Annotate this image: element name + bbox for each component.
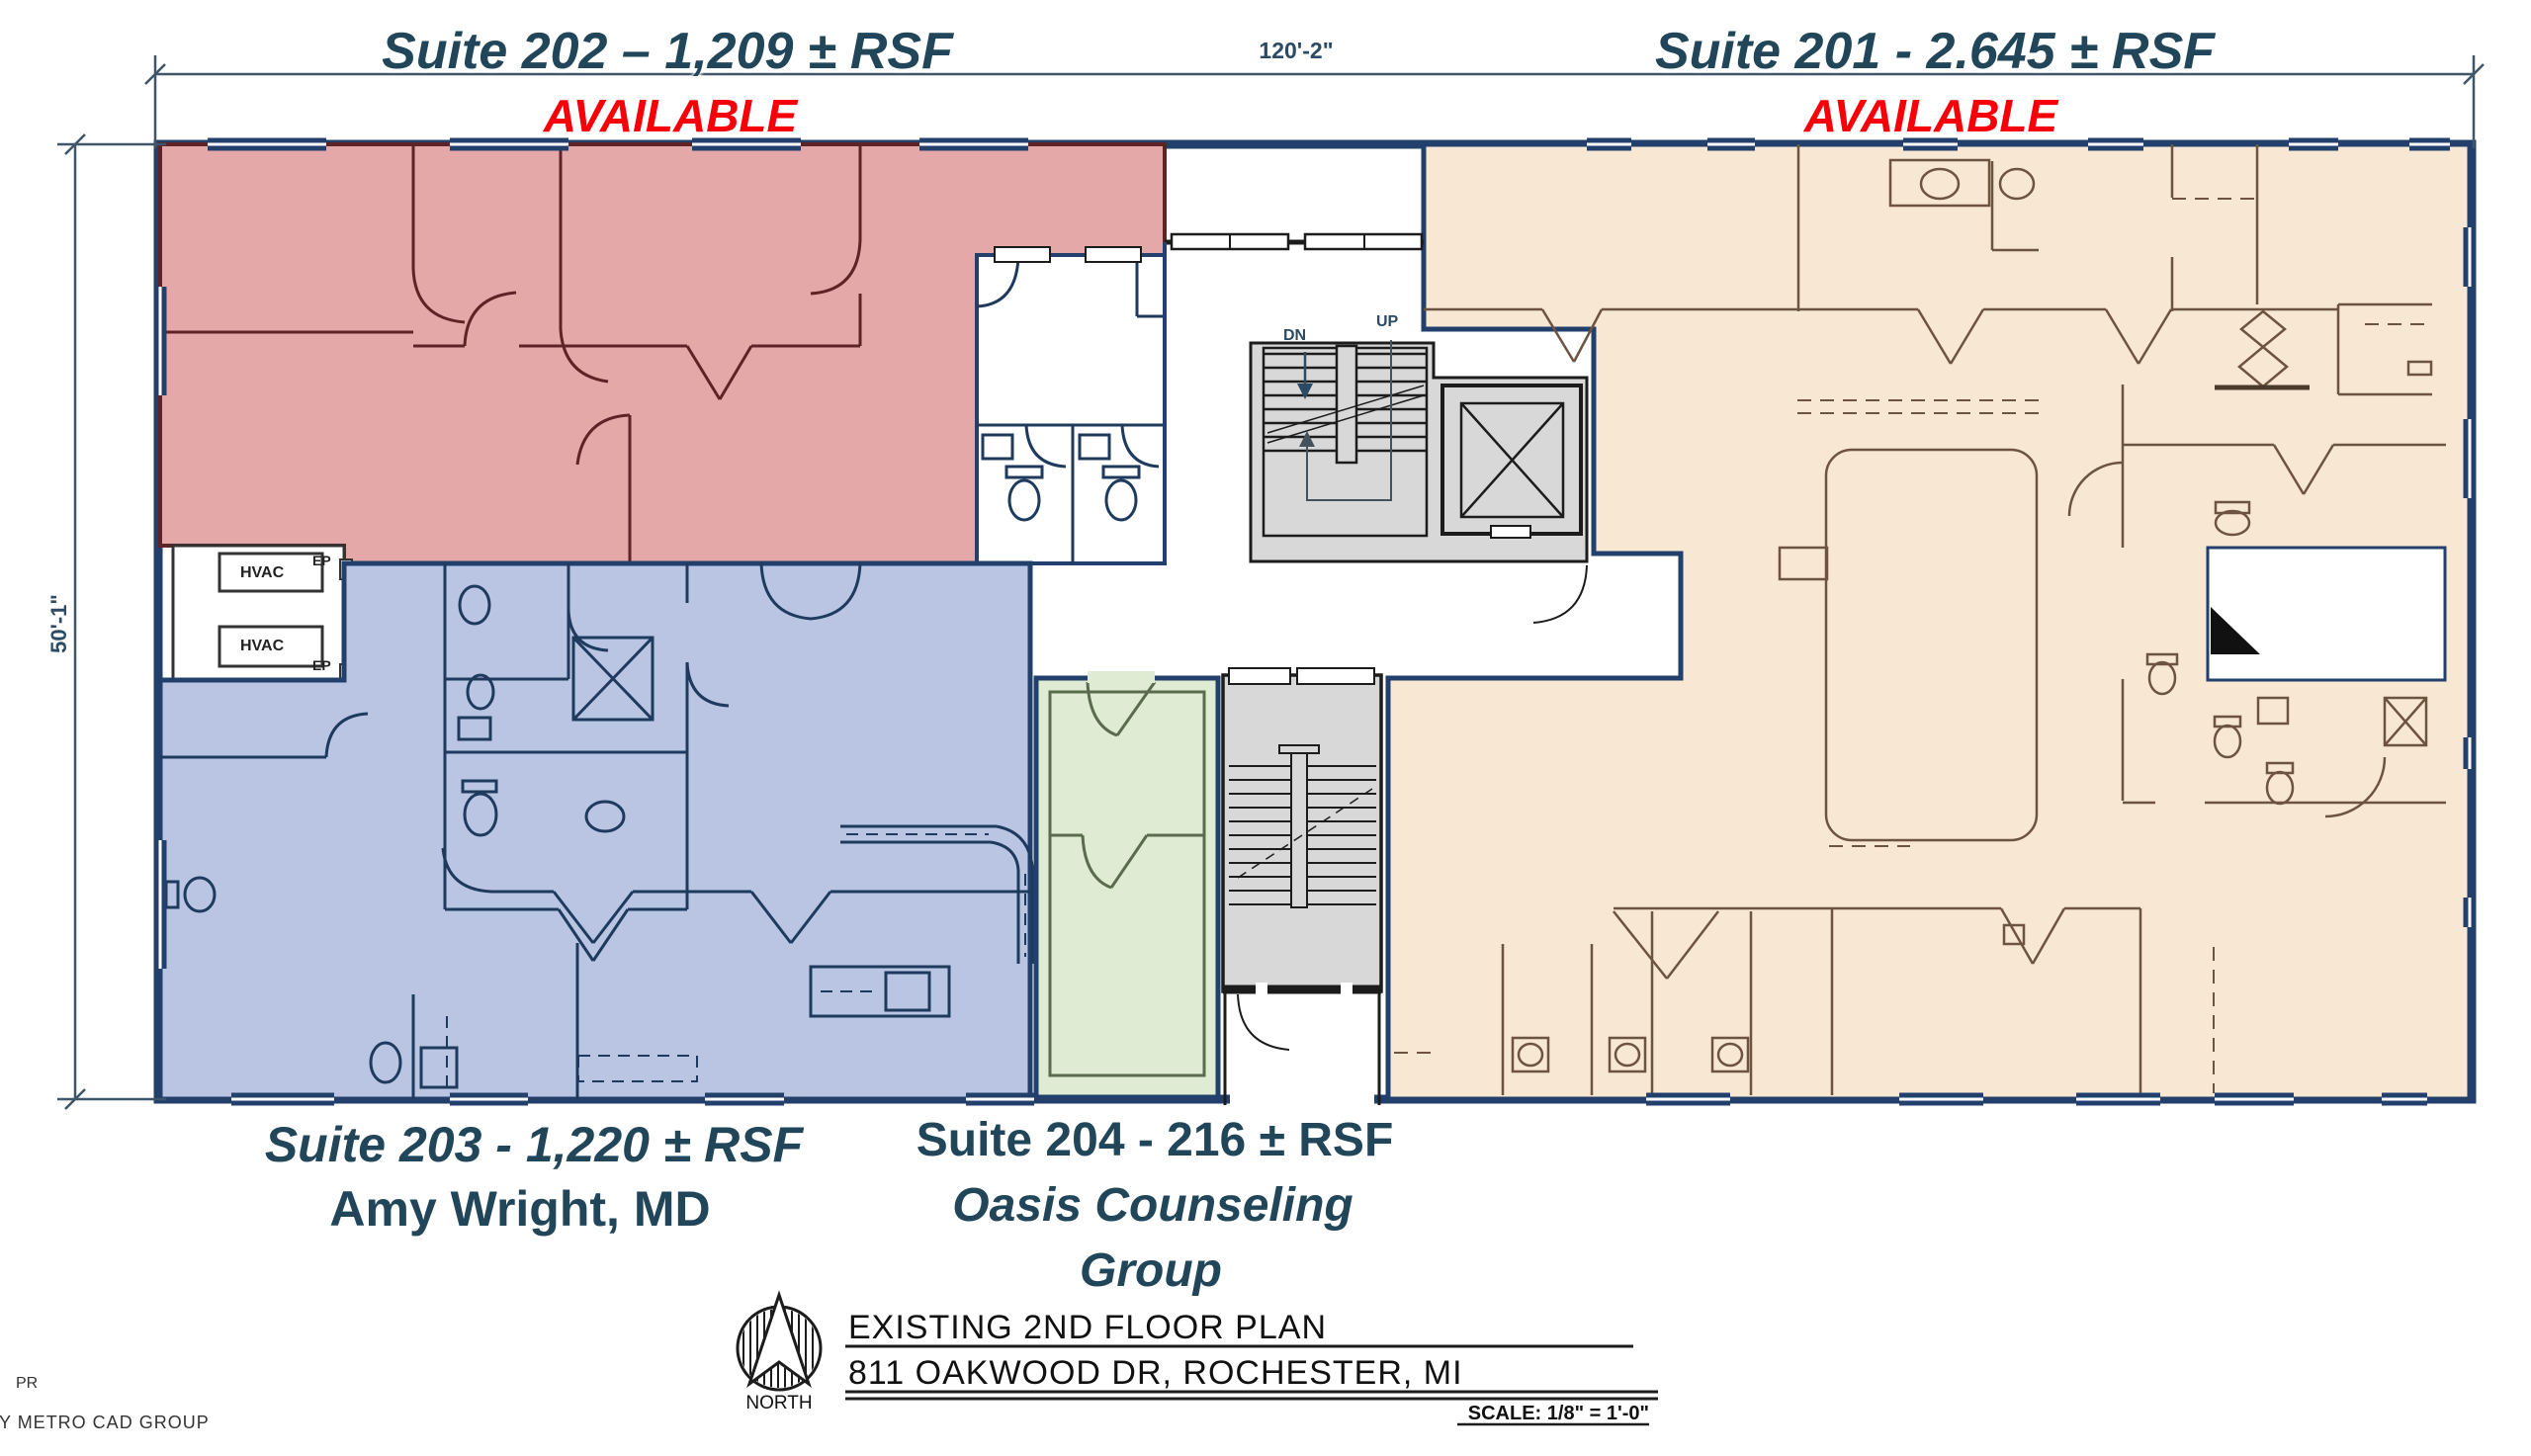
sheet-address: 811 OAKWOOD DR, ROCHESTER, MI (848, 1356, 1463, 1390)
ep-label-1: EP (312, 554, 331, 567)
corridor-notch (2208, 548, 2445, 680)
floor-plan-sheet: Suite 202 – 1,209 ± RSF AVAILABLE 120'-2… (0, 0, 2531, 1456)
restroom-block (977, 247, 1165, 563)
suite-204-tenant-line2: Group (1080, 1247, 1222, 1295)
ep-label-2: EP (312, 658, 331, 672)
floor-plan-drawing (0, 0, 2531, 1456)
sheet-scale: SCALE: 1/8" = 1'-0" (1468, 1404, 1649, 1423)
suite-201-status: AVAILABLE (1804, 93, 2057, 138)
suite-203-label: Suite 203 - 1,220 ± RSF (265, 1120, 803, 1169)
suite-204-tenant-line1: Oasis Counseling (952, 1182, 1353, 1230)
suite-204-region (1036, 671, 1218, 1097)
credit-line-1: PR (16, 1376, 38, 1392)
elevator (1442, 385, 1581, 538)
north-arrow-icon (738, 1295, 821, 1390)
dimension-width: 120'-2" (1259, 40, 1333, 62)
north-label: NORTH (745, 1394, 812, 1413)
suite-204-label: Suite 204 - 216 ± RSF (916, 1117, 1394, 1164)
suite-201-label: Suite 201 - 2.645 ± RSF (1655, 26, 2215, 77)
hvac-label-2: HVAC (240, 639, 284, 654)
stair-up-label: UP (1376, 314, 1398, 330)
hvac-label-1: HVAC (240, 565, 284, 581)
credit-line-2: BY METRO CAD GROUP (0, 1413, 210, 1431)
dimension-height: 50'-1" (48, 594, 70, 653)
sheet-title: EXISTING 2ND FLOOR PLAN (848, 1311, 1327, 1344)
suite-202-label: Suite 202 – 1,209 ± RSF (382, 26, 953, 77)
suite-202-status: AVAILABLE (544, 93, 797, 138)
stair-dn-label: DN (1283, 328, 1306, 344)
suite-203-tenant: Amy Wright, MD (329, 1184, 710, 1234)
